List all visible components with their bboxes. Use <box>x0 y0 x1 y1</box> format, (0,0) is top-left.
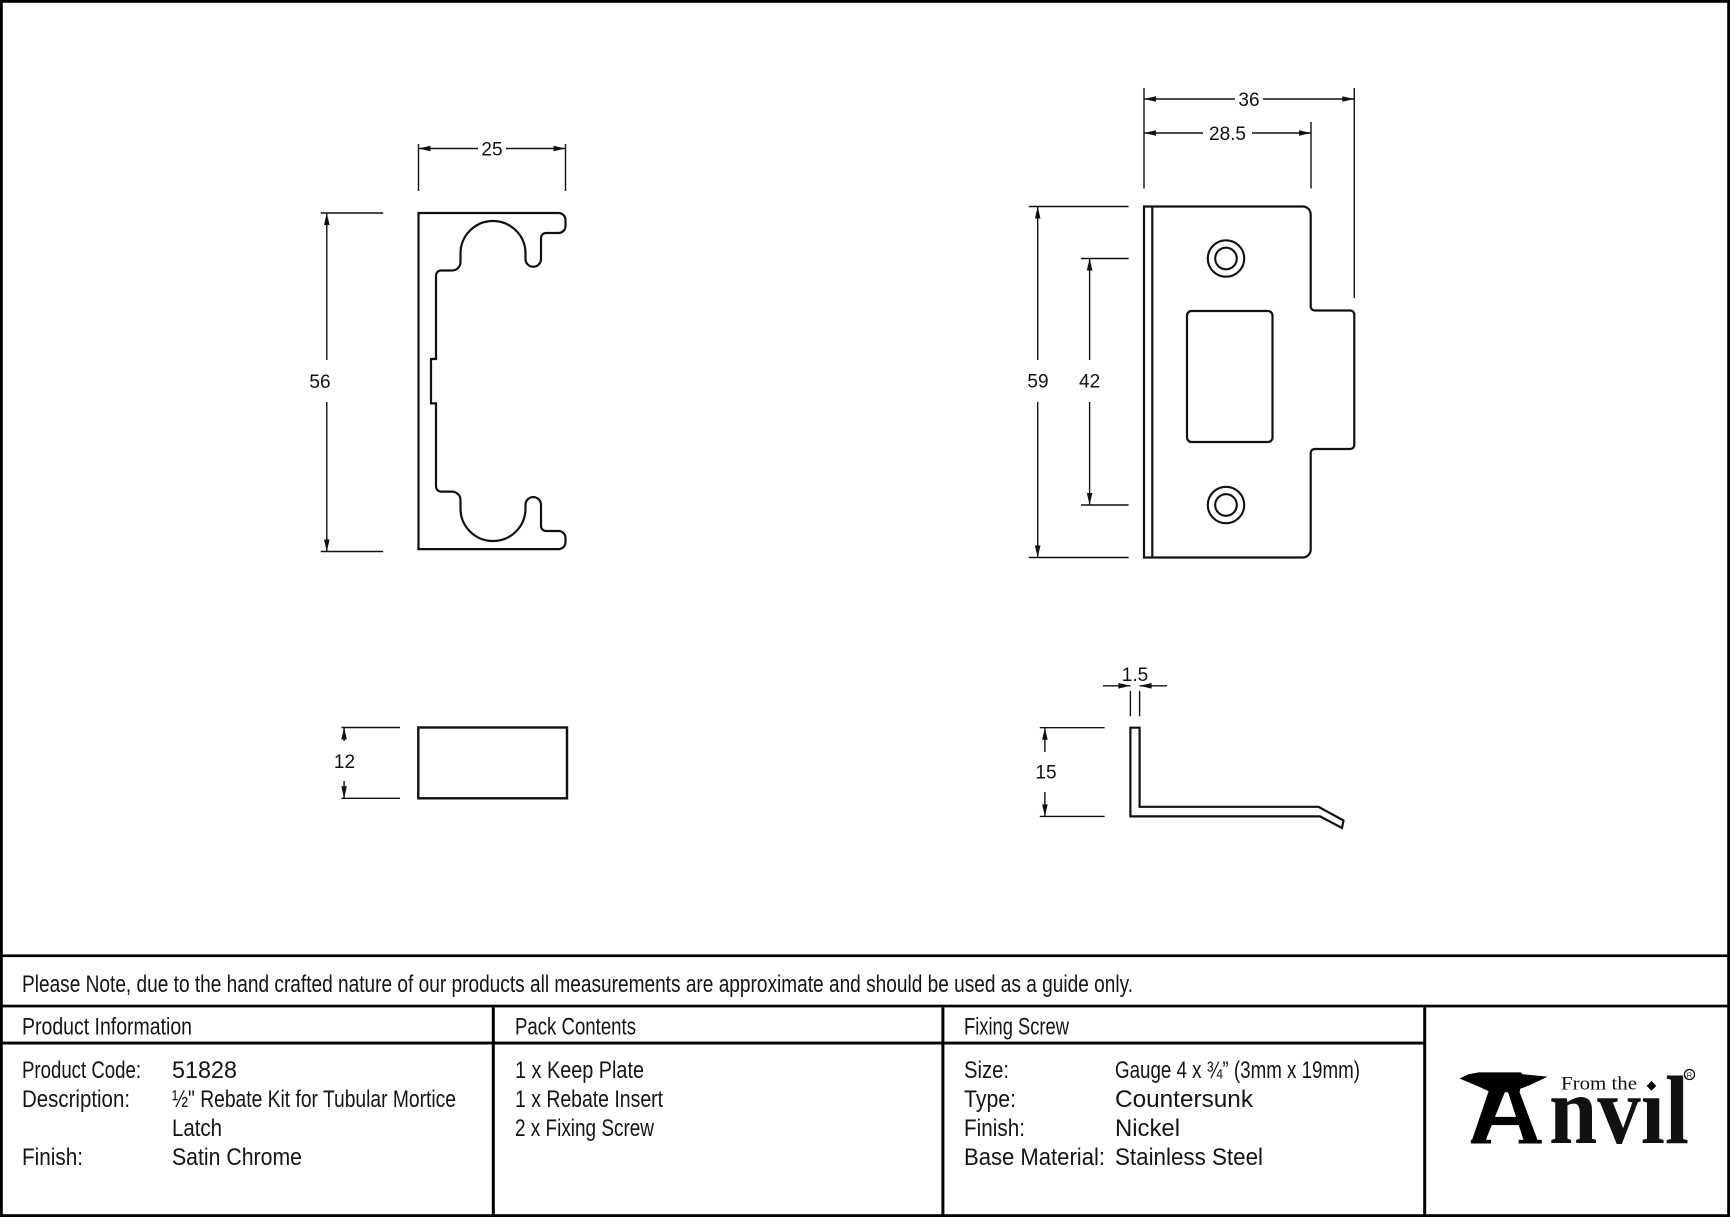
svg-text:59: 59 <box>1027 372 1048 393</box>
svg-text:Pack Contents: Pack Contents <box>515 1014 636 1041</box>
svg-text:Product Information: Product Information <box>22 1014 192 1041</box>
svg-text:51828: 51828 <box>172 1057 237 1084</box>
svg-text:Fixing Screw: Fixing Screw <box>964 1014 1070 1041</box>
svg-text:12: 12 <box>334 752 355 773</box>
svg-text:Base Material:: Base Material: <box>964 1144 1105 1171</box>
svg-text:Please Note, due to the hand c: Please Note, due to the hand crafted nat… <box>22 971 1133 998</box>
svg-text:15: 15 <box>1035 763 1056 784</box>
svg-text:Latch: Latch <box>172 1115 222 1142</box>
svg-text:1 x Rebate Insert: 1 x Rebate Insert <box>515 1086 663 1113</box>
svg-text:2 x Fixing Screw: 2 x Fixing Screw <box>515 1115 655 1142</box>
svg-text:Product Code:: Product Code: <box>22 1057 141 1084</box>
svg-text:nvıl: nvıl <box>1549 1057 1689 1164</box>
svg-text:R: R <box>1687 1071 1693 1080</box>
svg-text:Stainless Steel: Stainless Steel <box>1115 1144 1263 1171</box>
svg-text:1 x Keep Plate: 1 x Keep Plate <box>515 1057 644 1084</box>
svg-text:56: 56 <box>309 372 330 393</box>
svg-text:Gauge 4 x ¾” (3mm x 19mm): Gauge 4 x ¾” (3mm x 19mm) <box>1115 1057 1360 1084</box>
svg-text:Size:: Size: <box>964 1057 1009 1084</box>
svg-text:Finish:: Finish: <box>964 1115 1025 1142</box>
svg-text:Satin Chrome: Satin Chrome <box>172 1144 302 1171</box>
svg-text:Countersunk: Countersunk <box>1115 1086 1254 1113</box>
svg-text:Type:: Type: <box>964 1086 1016 1113</box>
svg-text:Finish:: Finish: <box>22 1144 83 1171</box>
svg-text:1.5: 1.5 <box>1122 665 1148 686</box>
svg-text:½" Rebate Kit for Tubular Mort: ½" Rebate Kit for Tubular Mortice <box>172 1086 456 1113</box>
svg-text:25: 25 <box>481 140 502 161</box>
svg-text:42: 42 <box>1079 372 1100 393</box>
svg-text:28.5: 28.5 <box>1209 124 1246 145</box>
svg-text:Description:: Description: <box>22 1086 130 1113</box>
svg-text:Nickel: Nickel <box>1115 1115 1180 1142</box>
svg-text:36: 36 <box>1238 90 1259 111</box>
